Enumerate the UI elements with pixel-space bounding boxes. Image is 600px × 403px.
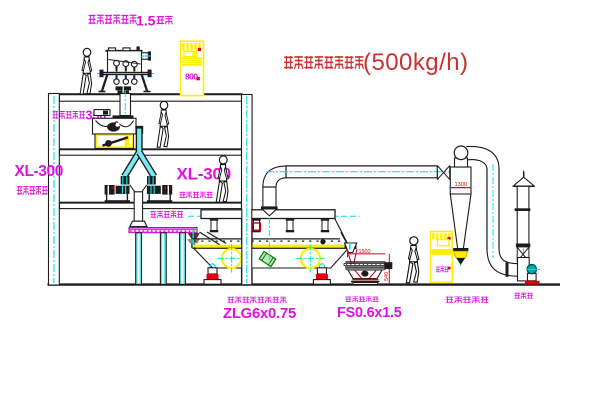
svg-text:XL-300: XL-300 [15,163,63,180]
svg-text:FS0.6x1.5: FS0.6x1.5 [337,305,402,321]
svg-text:1500: 1500 [359,249,371,255]
svg-text:(500kg/h): (500kg/h) [363,49,468,76]
svg-text:1.5: 1.5 [136,12,156,28]
svg-text:ZLG6x0.75: ZLG6x0.75 [223,306,296,322]
svg-text:800: 800 [185,72,198,82]
svg-text:540: 540 [384,272,390,281]
